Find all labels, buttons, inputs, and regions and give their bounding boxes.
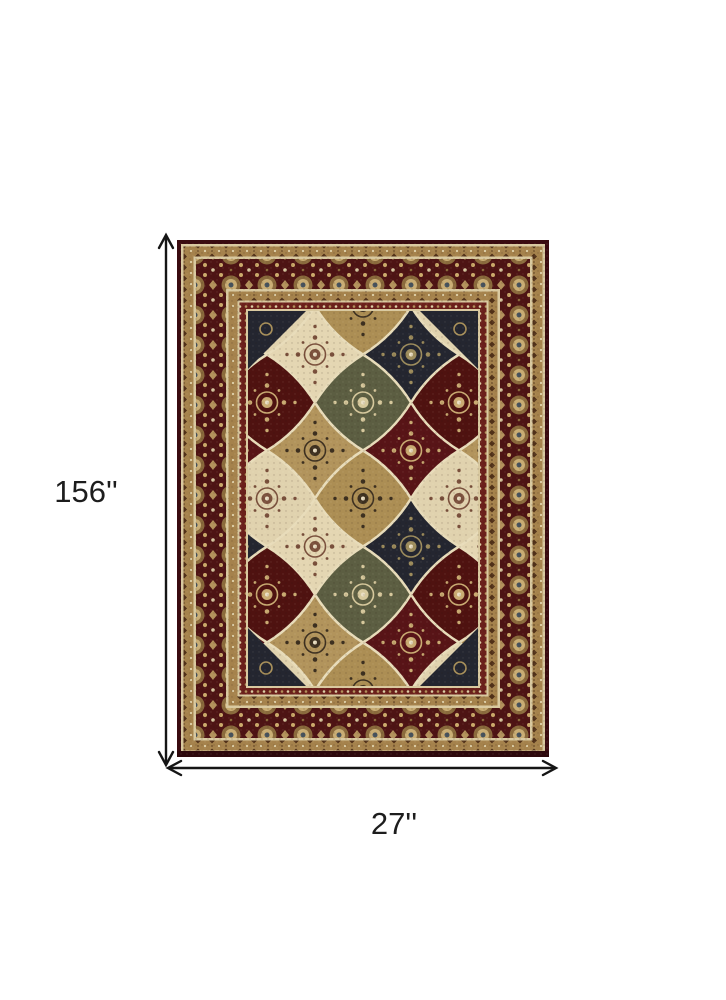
height-dimension-arrow	[159, 235, 173, 765]
rug-graphic	[177, 240, 549, 757]
rug-texture	[177, 240, 549, 757]
height-dimension-label: 156''	[48, 476, 124, 507]
rug-image	[177, 240, 549, 757]
width-dimension-label: 27''	[352, 808, 436, 839]
product-dimension-canvas: 156'' 27''	[0, 0, 726, 1000]
width-dimension-arrow	[168, 761, 556, 775]
